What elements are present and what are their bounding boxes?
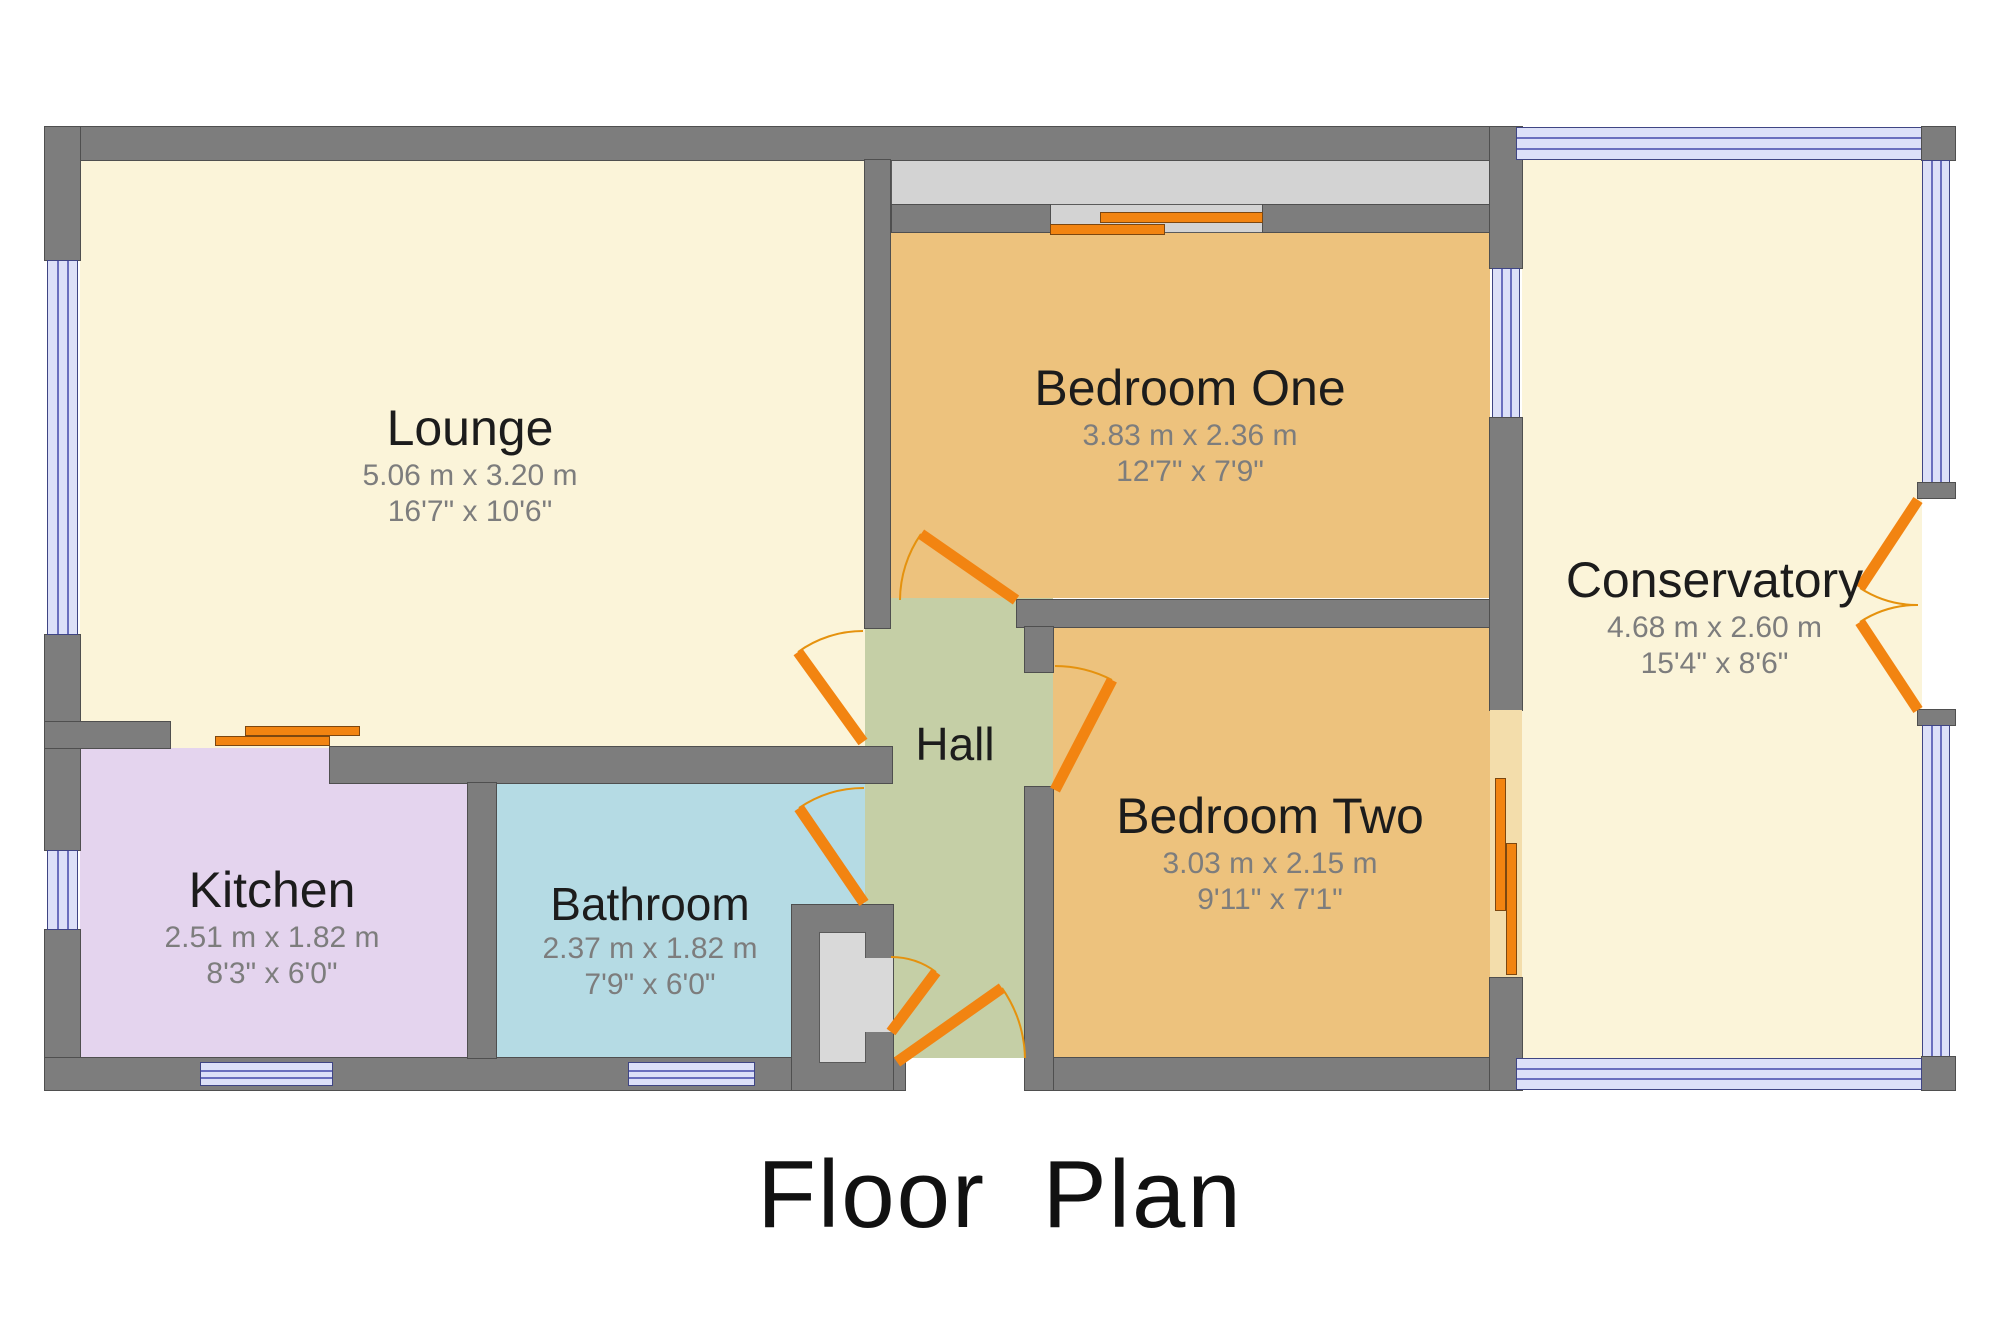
conservatory-door-post-upper [1918, 483, 1955, 498]
wall-hall-bedroom-two-upper-stub [1025, 627, 1053, 672]
conservatory-top-window [1516, 127, 1922, 160]
wall-bottom-left [45, 1058, 905, 1090]
sliding-door-kitchen-a [215, 736, 330, 746]
cupboard-interior [820, 933, 865, 1062]
sliding-door-wardrobe-a [1050, 224, 1165, 235]
conservatory-bottom-window [1516, 1058, 1922, 1090]
bedroom-one-window [1492, 268, 1520, 418]
page-title: Floor Plan [0, 1140, 2000, 1250]
conservatory-door-post-lower [1918, 710, 1955, 725]
room-conservatory [1522, 160, 1922, 1060]
room-bedroom-two [1053, 627, 1490, 1058]
sliding-door-kitchen-b [245, 726, 360, 736]
wall-lounge-bathroom [330, 747, 892, 783]
wall-top [45, 127, 1516, 160]
wall-bottom-right [1025, 1058, 1516, 1090]
kitchen-side-window [47, 850, 78, 930]
wardrobe-stub-right [1263, 205, 1490, 232]
room-lounge [80, 160, 865, 748]
wall-left-upper [45, 127, 80, 260]
sliding-door-wardrobe-b [1100, 212, 1263, 223]
floor-plan: Lounge 5.06 m x 3.20 m 16'7" x 10'6" Kit… [0, 0, 2000, 1333]
wall-lounge-hall [865, 160, 890, 628]
bathroom-bottom-window [628, 1062, 755, 1086]
conservatory-corner-se [1922, 1057, 1955, 1090]
conservatory-corner-ne [1922, 127, 1955, 160]
wardrobe-area [892, 160, 1490, 205]
conservatory-right-window-upper [1922, 160, 1950, 483]
wall-kitchen-bathroom [468, 783, 496, 1058]
wall-bedroom-one-bottom [1017, 600, 1516, 627]
wall-hall-bedroom-two-lower [1025, 787, 1053, 1090]
room-bedroom-one [890, 232, 1490, 598]
kitchen-bottom-window [200, 1062, 333, 1086]
sliding-door-bedroom-two-a [1495, 778, 1506, 911]
wardrobe-stub-left [892, 205, 1050, 232]
wall-kitchen-stub [45, 722, 170, 748]
sliding-door-bedroom-two-b [1506, 843, 1517, 975]
cupboard-opening [865, 958, 893, 1032]
room-kitchen [80, 748, 468, 1058]
conservatory-right-window-lower [1922, 725, 1950, 1057]
wall-conservatory-mid [1490, 418, 1522, 710]
lounge-window [47, 260, 78, 635]
